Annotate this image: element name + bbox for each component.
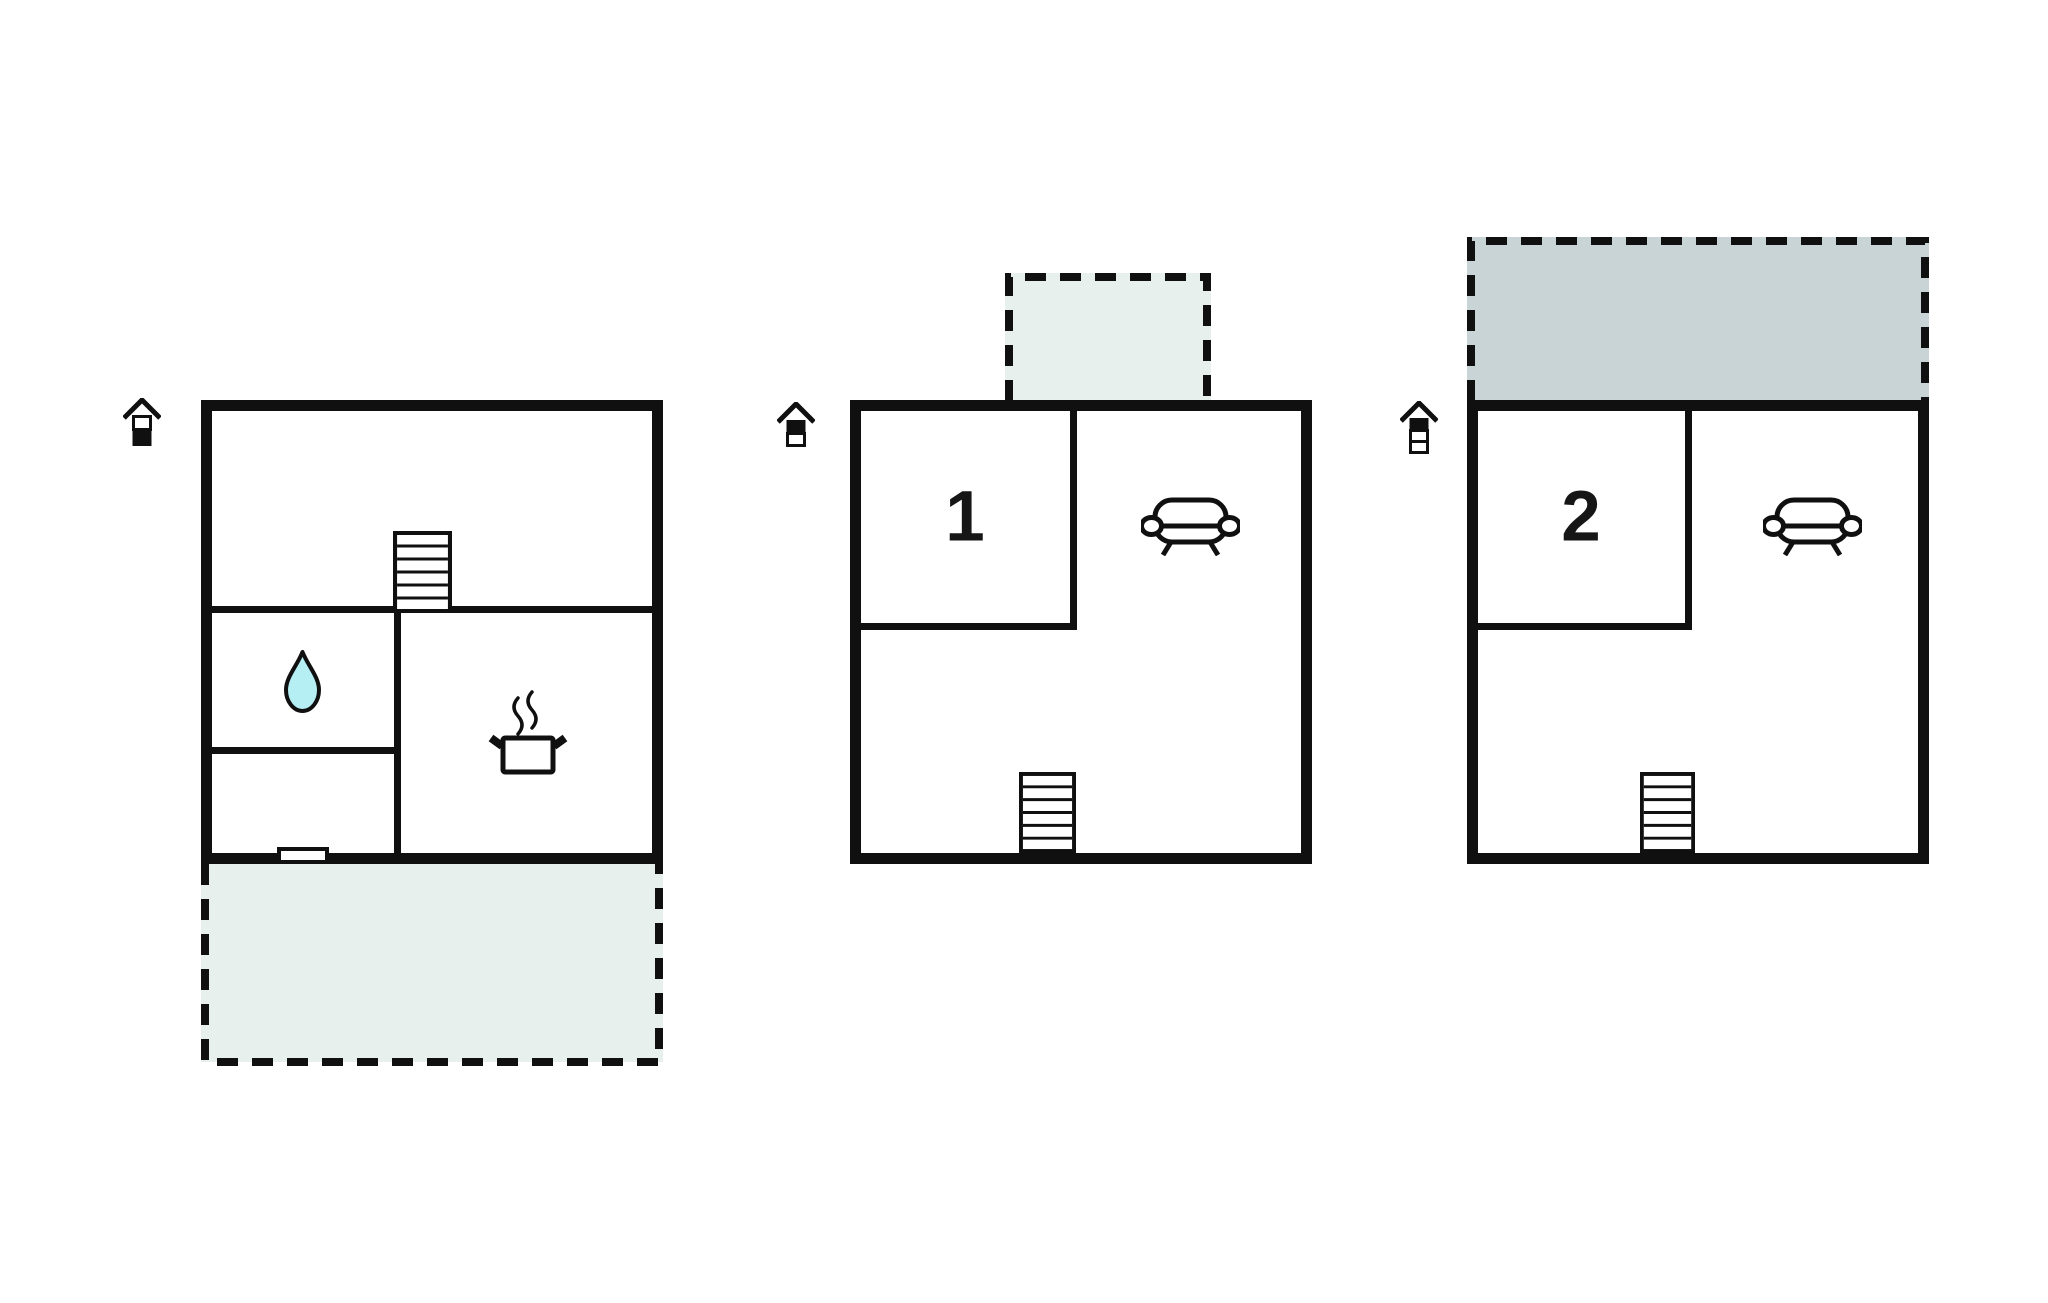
floorplan-first: 1	[850, 400, 1312, 864]
stairs-icon	[1019, 772, 1076, 853]
water-drop-icon	[283, 650, 322, 713]
floorplan-canvas: 1	[0, 0, 2048, 1303]
sofa-icon	[1141, 496, 1240, 556]
stairs-icon	[393, 531, 452, 613]
balcony-area-first	[1005, 273, 1211, 401]
stairs-icon	[1640, 772, 1695, 853]
terrace-area	[201, 864, 663, 1066]
interior-wall	[394, 606, 401, 853]
house-level-3-of-3-icon	[1400, 401, 1438, 457]
interior-wall	[861, 623, 1077, 630]
floorplan-second: 2	[1467, 400, 1929, 864]
cooking-pot-icon	[488, 688, 570, 778]
interior-wall	[1685, 411, 1692, 630]
interior-wall	[1070, 411, 1077, 630]
house-level-1-of-2-icon	[123, 398, 161, 448]
entrance-door	[277, 847, 329, 864]
interior-wall	[1478, 623, 1692, 630]
room-number-label: 1	[945, 482, 985, 553]
house-level-2-of-2-icon	[777, 402, 815, 448]
balcony-area-second	[1467, 237, 1929, 401]
floorplan-ground	[201, 400, 663, 864]
interior-wall	[212, 747, 401, 754]
room-number-label: 2	[1561, 482, 1601, 553]
sofa-icon	[1763, 496, 1862, 556]
